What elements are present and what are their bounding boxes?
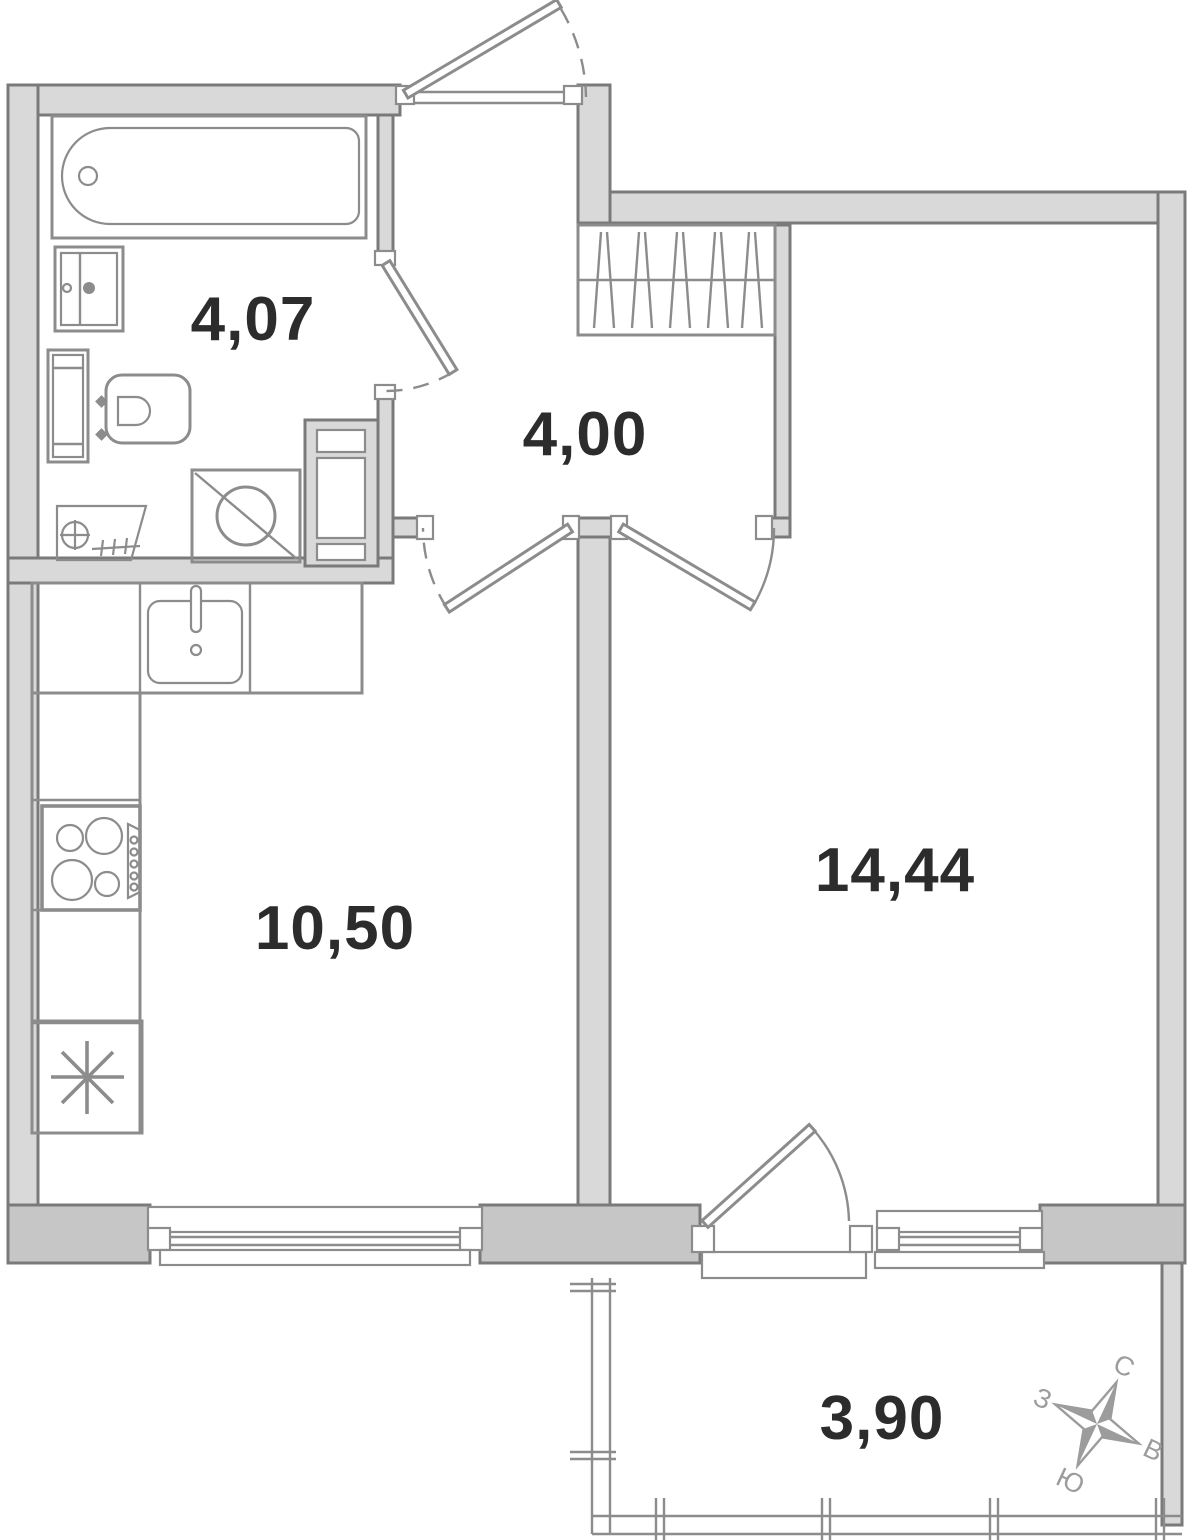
bottom-wall-left-block (8, 1205, 150, 1263)
balcony-wall-right (1162, 1263, 1182, 1525)
pipe-tick (101, 540, 103, 556)
vent-shaft (305, 420, 378, 566)
entry-step-wall-horizontal (610, 192, 1185, 223)
bottom-wall-center-block (480, 1205, 700, 1263)
basin-faucet (83, 282, 95, 294)
towel-rail (57, 506, 146, 560)
door-leaf (444, 524, 572, 612)
window-sill (875, 1252, 1044, 1268)
kitchen-counter (32, 583, 362, 1133)
burner (95, 872, 119, 896)
burner (86, 818, 122, 854)
bathtub-outer (52, 116, 366, 238)
stove-knob (131, 884, 138, 891)
room-area-label-balcony: 3,90 (820, 1384, 945, 1453)
window-frame (148, 1207, 482, 1232)
compass-label-west: З (1029, 1382, 1056, 1416)
window-jamb (460, 1228, 482, 1250)
stove-knob (131, 849, 138, 856)
door-jamb (692, 1226, 714, 1252)
room-area-label-kitchen: 10,50 (255, 894, 415, 963)
kitchen-door (417, 516, 579, 612)
wardrobe (578, 225, 775, 335)
burner (57, 825, 83, 851)
sink-faucet (191, 586, 201, 632)
room-area-label-living-room: 14,44 (815, 836, 975, 905)
top-wall (8, 85, 400, 115)
window-frame (877, 1211, 1042, 1232)
fridge-snowflake-icon (32, 1021, 142, 1133)
kitchen-window (148, 1207, 482, 1265)
floor-plan: 4,07 4,00 10,50 14,44 3,90 С В Ю З (0, 0, 1192, 1540)
entry-step-wall-vertical (578, 85, 610, 223)
stove-knob (131, 873, 138, 880)
bathroom-wall-right-lower (378, 390, 393, 583)
bathtub-drain (79, 167, 97, 185)
door-leaf (403, 0, 561, 98)
door-jamb (850, 1226, 872, 1252)
sink-drain (191, 645, 201, 655)
floor-plan-drawing: 4,07 4,00 10,50 14,44 3,90 С В Ю З (0, 0, 1192, 1540)
living-room-door (611, 516, 774, 610)
bathtub (52, 116, 366, 238)
door-sill (702, 1252, 866, 1278)
door-jamb (564, 86, 582, 104)
right-wall (1158, 192, 1185, 1211)
bathroom-door (375, 251, 457, 399)
entrance-door (396, 0, 586, 104)
room-area-label-hallway: 4,00 (523, 400, 648, 469)
window-jamb (877, 1228, 899, 1250)
compass-label-north: С (1109, 1348, 1139, 1383)
kitchen-sink (148, 586, 242, 683)
toilet-bowl-inner (118, 397, 150, 425)
stove-knob (131, 837, 138, 844)
pipe-tick (113, 539, 115, 555)
kitchen-living-wall (578, 537, 610, 1211)
basin-drain (63, 284, 71, 292)
vent-shaft-opening (317, 544, 365, 560)
towel-rail-pipe (92, 546, 140, 549)
vent-shaft-opening (317, 430, 365, 452)
compass-label-south: Ю (1052, 1462, 1089, 1501)
door-leaf (382, 261, 457, 375)
window-jamb (148, 1228, 170, 1250)
door-jamb (756, 516, 772, 539)
bottom-wall-right-block (1040, 1205, 1185, 1263)
hall-wall-right (775, 225, 790, 518)
washbasin (55, 247, 123, 331)
door-swing-arc (812, 1128, 849, 1221)
toilet-tank-inner (53, 355, 83, 457)
living-room-window (875, 1211, 1044, 1268)
door-jamb (417, 516, 433, 539)
stove (42, 806, 140, 910)
door-leaf (702, 1124, 815, 1227)
window-sill (160, 1250, 470, 1265)
room-area-label-bathroom: 4,07 (191, 285, 316, 354)
balcony-door (692, 1124, 872, 1278)
washing-machine (192, 470, 300, 562)
bathroom-wall-right-upper (378, 115, 393, 258)
door-leaf (619, 524, 755, 610)
window-jamb (1020, 1228, 1042, 1250)
pipe-tick (125, 538, 127, 554)
toilet (48, 350, 190, 462)
vent-shaft-opening (317, 458, 365, 538)
bathtub-inner (62, 128, 359, 224)
burner (52, 860, 92, 900)
stove-knob (131, 861, 138, 868)
